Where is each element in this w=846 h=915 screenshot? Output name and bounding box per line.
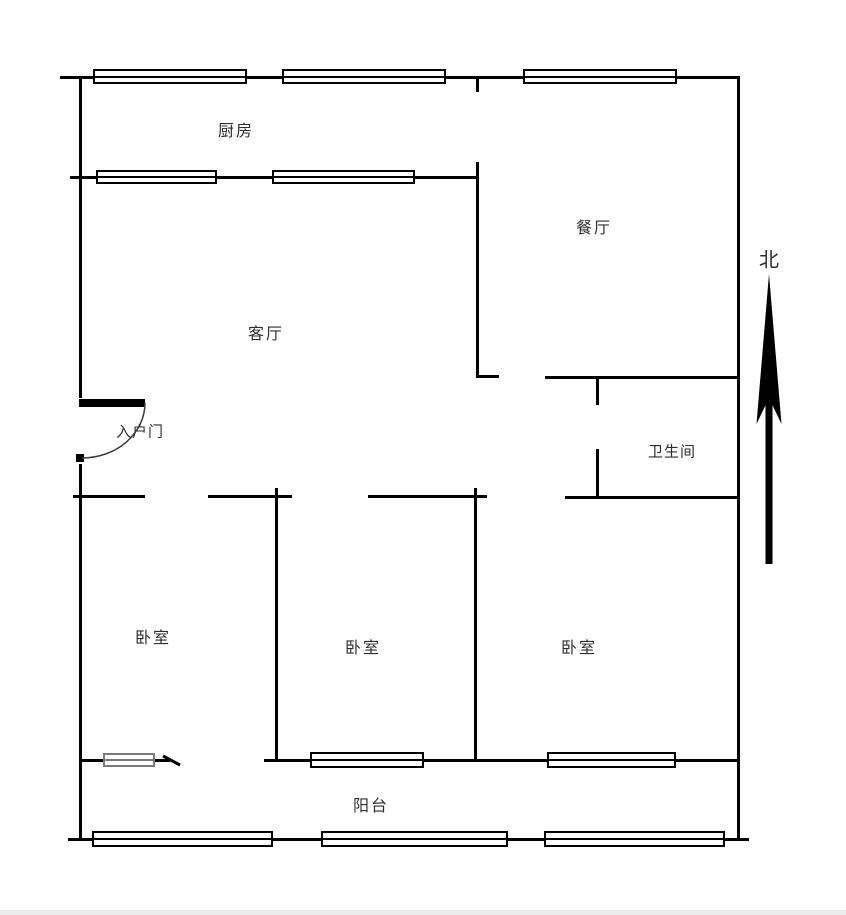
room-label-balcony: 阳台 bbox=[353, 792, 389, 816]
floor-plan: 厨房 餐厅 客厅 入户门 卫生间 卧室 卧室 卧室 阳台 北 bbox=[0, 0, 846, 915]
room-label-kitchen: 厨房 bbox=[218, 117, 254, 141]
overlay-graphics bbox=[0, 0, 846, 915]
room-label-bathroom: 卫生间 bbox=[648, 441, 696, 462]
room-label-dining: 餐厅 bbox=[576, 214, 612, 238]
north-label: 北 bbox=[759, 244, 779, 273]
entry-door-label: 入户门 bbox=[116, 421, 164, 442]
room-label-bedroom-middle: 卧室 bbox=[345, 634, 381, 658]
room-label-bedroom-left: 卧室 bbox=[135, 624, 171, 648]
north-arrow-icon bbox=[757, 274, 782, 564]
balcony-door-tick bbox=[163, 756, 180, 765]
room-label-living: 客厅 bbox=[248, 320, 284, 344]
room-label-bedroom-right: 卧室 bbox=[561, 634, 597, 658]
page-edge-strip bbox=[0, 910, 846, 915]
